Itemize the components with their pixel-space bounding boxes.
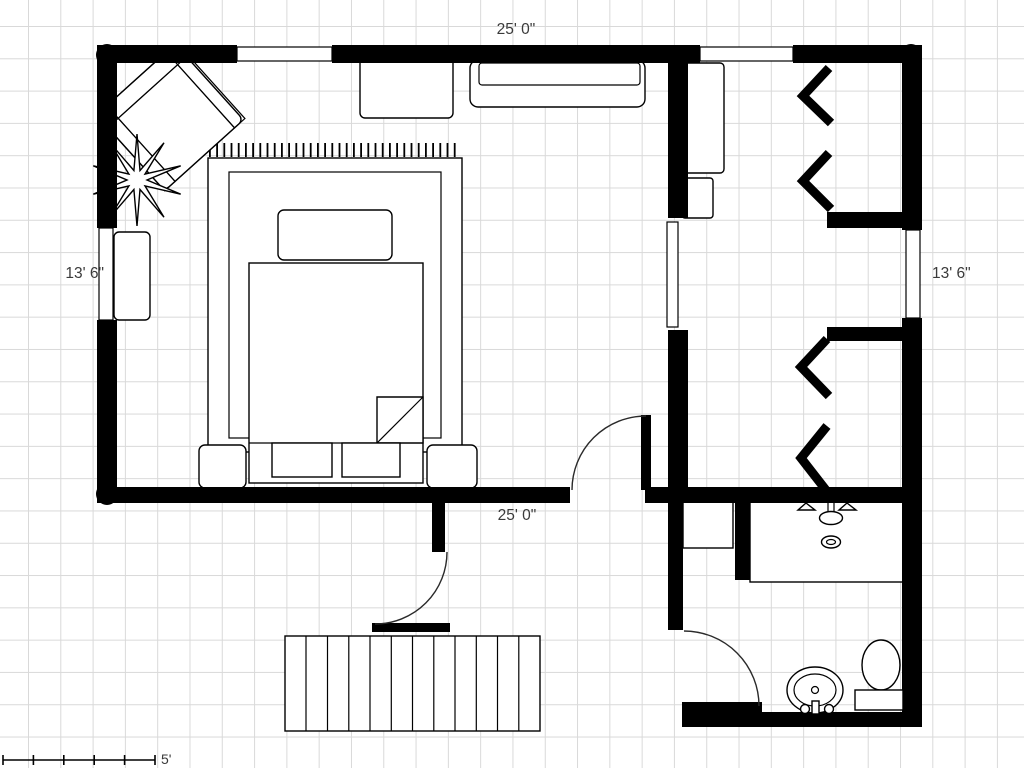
floor-plan-drawing	[0, 0, 1024, 768]
bedroom-door-leaf	[641, 415, 651, 490]
corner-post-top-right	[900, 44, 922, 66]
headboard	[278, 210, 392, 260]
interior-wall-bathroom	[668, 503, 683, 630]
vanity-drain-outer	[822, 536, 841, 548]
deck-door-leaf	[372, 623, 450, 632]
dimension-label-right: 13' 6"	[932, 265, 971, 283]
foot-cushion-right	[342, 443, 400, 477]
window-top-2	[700, 47, 793, 61]
closet-stub-lower	[827, 327, 910, 341]
hanging-rod-chevron-3	[801, 339, 829, 396]
pedestal-sink-tap-left	[801, 705, 810, 714]
window-top-1	[237, 47, 332, 61]
window-bench	[114, 232, 150, 320]
bathroom-door-leaf	[682, 702, 762, 714]
bedroom-door-swing	[572, 416, 646, 490]
pedestal-sink-spout	[812, 701, 819, 714]
window-right	[906, 230, 920, 318]
foot-cushion-left	[272, 443, 332, 477]
hanging-rod-chevron-2	[803, 153, 831, 209]
right-wall-lower	[902, 318, 922, 727]
scale-bar-label: 5'	[161, 751, 171, 767]
left-wall-lower	[97, 320, 117, 503]
dimension-label-bottom: 25' 0"	[457, 507, 577, 525]
dresser	[360, 57, 453, 118]
corner-post-bottom-left	[96, 483, 118, 505]
floor-plan-canvas: 25' 0" 13' 6" 13' 6" 25' 0" 5'	[0, 0, 1024, 768]
media-console	[470, 60, 645, 107]
nightstand-right	[427, 445, 477, 488]
hanging-rod-chevron-1	[803, 68, 831, 123]
toilet-bowl	[862, 640, 900, 690]
hanging-rod-chevron-4	[801, 426, 829, 494]
bathroom-bottom-wall	[682, 712, 922, 727]
bathroom-stub-wall	[735, 501, 750, 580]
right-wall-upper	[902, 45, 922, 230]
corner-post-bottom-right	[900, 483, 922, 505]
bathroom-door-swing	[684, 631, 759, 706]
deck-door-stub-wall	[432, 488, 445, 552]
left-wall-upper	[97, 45, 117, 228]
bathroom-cabinet	[683, 502, 733, 548]
bottom-wall-left	[97, 487, 570, 503]
interior-wall-opening	[667, 222, 678, 327]
closet-stub-upper	[827, 212, 910, 228]
corner-post-top-left	[96, 44, 118, 66]
vanity-faucet-spout	[820, 512, 843, 525]
deck-door-swing	[375, 552, 447, 624]
toilet-tank	[855, 690, 903, 710]
interior-wall-lower	[668, 330, 688, 503]
dimension-label-top: 25' 0"	[456, 21, 576, 39]
top-wall-middle	[332, 45, 700, 63]
interior-wall-upper	[668, 45, 688, 218]
wardrobe-unit	[683, 63, 724, 173]
dimension-label-left: 13' 6"	[40, 265, 104, 283]
scale-bar	[3, 755, 155, 765]
pedestal-sink-tap-right	[825, 705, 834, 714]
nightstand-left	[199, 445, 246, 488]
top-wall-left	[97, 45, 237, 63]
